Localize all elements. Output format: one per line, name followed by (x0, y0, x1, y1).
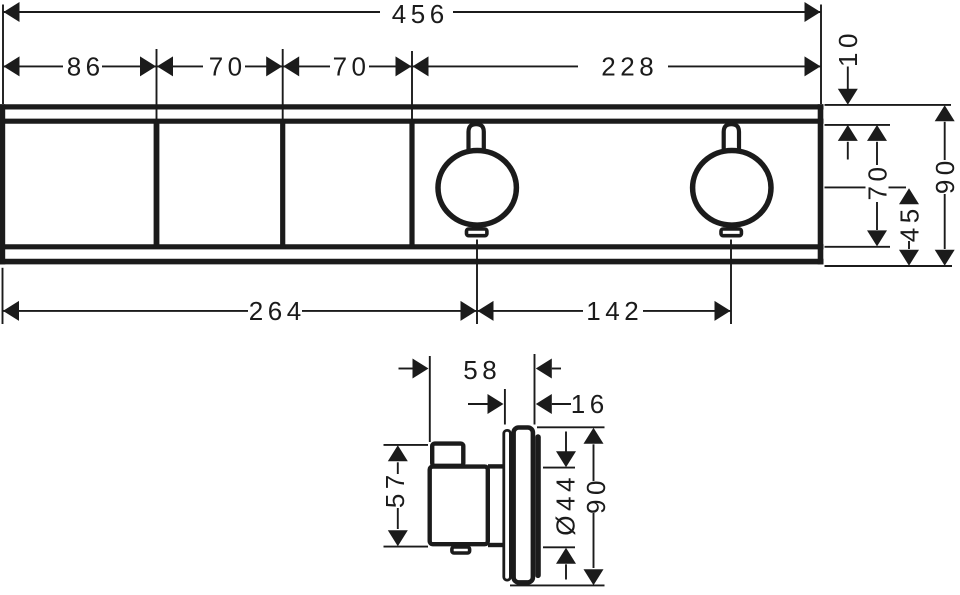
svg-text:456: 456 (392, 0, 449, 29)
svg-text:70: 70 (209, 52, 247, 82)
svg-text:142: 142 (586, 296, 643, 326)
svg-text:264: 264 (249, 296, 306, 326)
svg-text:16: 16 (571, 389, 609, 419)
svg-text:70: 70 (862, 163, 892, 201)
svg-text:86: 86 (67, 52, 105, 82)
svg-text:90: 90 (930, 156, 960, 194)
svg-text:45: 45 (894, 204, 924, 242)
svg-text:90: 90 (581, 476, 611, 514)
svg-text:58: 58 (463, 355, 501, 385)
svg-text:10: 10 (833, 29, 863, 67)
svg-text:Ø44: Ø44 (551, 473, 581, 536)
svg-text:57: 57 (380, 470, 410, 508)
svg-text:70: 70 (333, 52, 371, 82)
svg-text:228: 228 (601, 52, 658, 82)
